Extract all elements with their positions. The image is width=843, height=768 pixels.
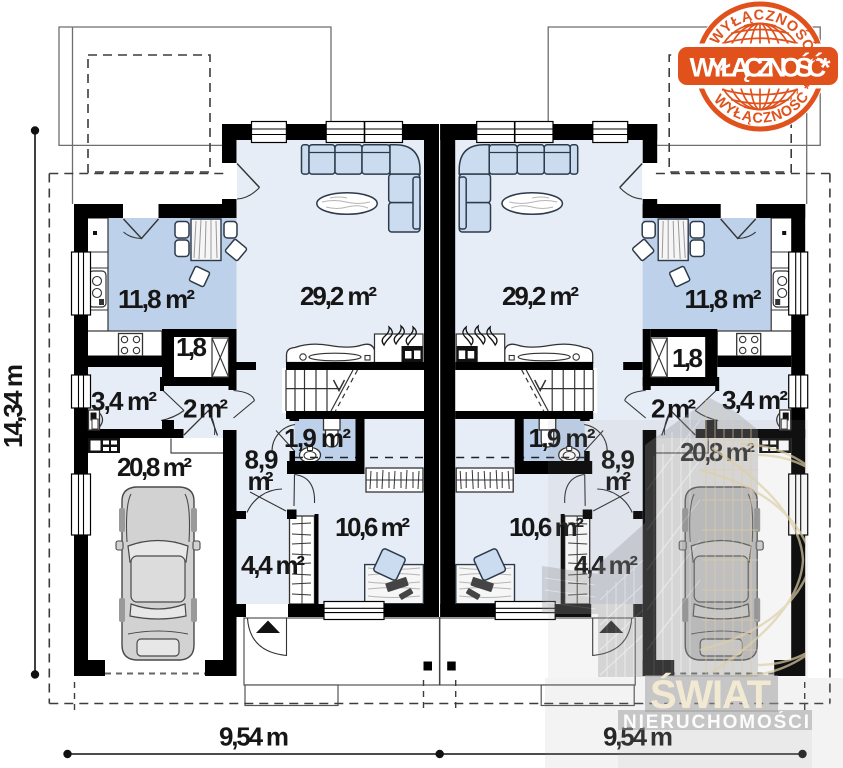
svg-text:29,2 m²: 29,2 m² <box>300 281 377 311</box>
svg-text:2 m²: 2 m² <box>183 394 228 424</box>
svg-text:ŚWIAT: ŚWIAT <box>650 671 774 717</box>
svg-text:3,4 m²: 3,4 m² <box>91 386 157 416</box>
svg-text:9,54 m: 9,54 m <box>219 722 289 752</box>
svg-text:14,34 m: 14,34 m <box>0 364 28 448</box>
svg-text:WYŁĄCZNOŚĆ*: WYŁĄCZNOŚĆ* <box>690 52 831 83</box>
svg-text:1,8: 1,8 <box>672 343 703 373</box>
svg-text:1,9 m²: 1,9 m² <box>284 423 351 453</box>
svg-text:11,8 m²: 11,8 m² <box>118 284 195 314</box>
svg-text:4,4 m²: 4,4 m² <box>241 550 305 580</box>
svg-text:29,2 m²: 29,2 m² <box>502 281 579 311</box>
svg-text:1,8: 1,8 <box>176 332 207 362</box>
svg-text:NIERUCHOMOŚCI: NIERUCHOMOŚCI <box>623 711 809 733</box>
svg-text:20,8 m²: 20,8 m² <box>117 452 192 482</box>
svg-text:11,8 m²: 11,8 m² <box>685 284 762 314</box>
svg-text:10,6 m²: 10,6 m² <box>335 512 410 542</box>
svg-text:m²: m² <box>248 466 274 496</box>
